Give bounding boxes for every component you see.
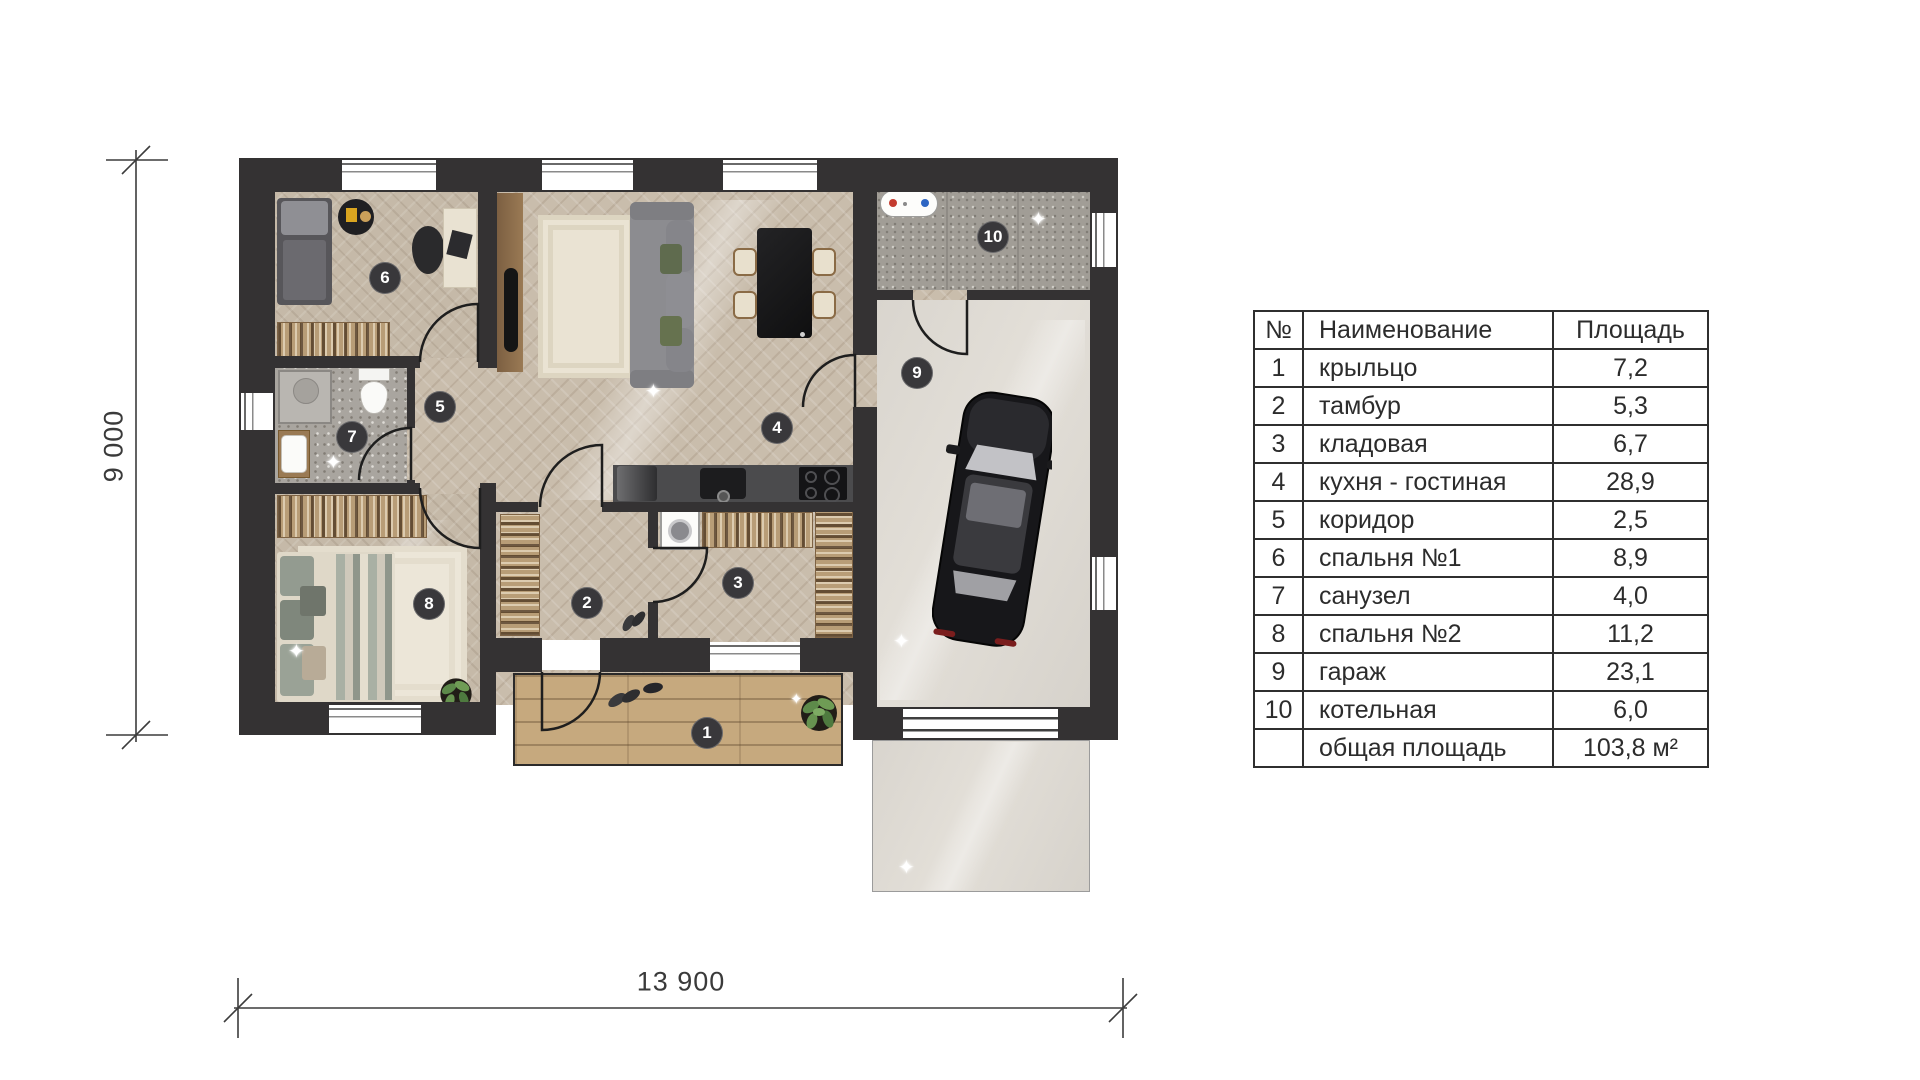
heater-cold-valve — [921, 199, 929, 207]
table-row: 4кухня - гостиная28,9 — [1254, 463, 1708, 501]
room-label-4: 4 — [761, 412, 793, 444]
window — [710, 642, 800, 670]
wall-hall-north — [480, 502, 538, 512]
table-row: 2тамбур5,3 — [1254, 387, 1708, 425]
book — [346, 208, 357, 222]
room-label-7: 7 — [336, 421, 368, 453]
col-header-num: № — [1254, 311, 1303, 349]
dining-chair — [812, 291, 836, 319]
cell-name: гараж — [1303, 653, 1553, 691]
cell-num: 2 — [1254, 387, 1303, 425]
dining-table — [757, 228, 812, 338]
window — [241, 393, 273, 430]
sofa-armrest — [630, 370, 694, 388]
table-row: 10котельная6,0 — [1254, 691, 1708, 729]
heater-dial — [903, 202, 907, 206]
table-row: 8спальня №211,2 — [1254, 615, 1708, 653]
area-table: № Наименование Площадь 1крыльцо7,22тамбу… — [1253, 310, 1709, 768]
cell-area: 11,2 — [1553, 615, 1708, 653]
room-label-2: 2 — [571, 587, 603, 619]
fridge — [617, 466, 657, 501]
dimension-width-label: 13 900 — [637, 967, 726, 998]
wardrobe-bedroom-1 — [277, 322, 390, 358]
window — [342, 160, 436, 190]
cell-name: спальня №2 — [1303, 615, 1553, 653]
window — [1092, 557, 1116, 610]
cell-area: 5,3 — [1553, 387, 1708, 425]
toilet-tank — [358, 368, 390, 381]
shelving-storage — [815, 510, 853, 638]
cell-name: общая площадь — [1303, 729, 1553, 767]
bed-pillow — [300, 586, 326, 616]
sofa-pillow-green — [660, 316, 682, 346]
burner — [824, 469, 840, 485]
table-row: 6спальня №18,9 — [1254, 539, 1708, 577]
cell-name: санузел — [1303, 577, 1553, 615]
cell-num: 6 — [1254, 539, 1303, 577]
cell-num: 10 — [1254, 691, 1303, 729]
sofa-armrest — [630, 202, 694, 220]
cell-name: крыльцо — [1303, 349, 1553, 387]
garage-apron — [872, 740, 1090, 892]
cell-name: котельная — [1303, 691, 1553, 729]
shelving-storage — [702, 512, 813, 548]
wall-bedroom2-north — [275, 483, 420, 494]
table-highlight — [800, 332, 805, 337]
boiler-tile-joint — [1017, 188, 1019, 290]
wall-garage-west — [853, 192, 877, 355]
garage-gate — [903, 709, 1058, 738]
cell-num: 5 — [1254, 501, 1303, 539]
dimension-height-label: 9 000 — [99, 410, 130, 483]
cell-area: 103,8 м² — [1553, 729, 1708, 767]
dining-chair — [733, 291, 757, 319]
cell-num: 8 — [1254, 615, 1303, 653]
wall-hall-storage — [648, 512, 658, 548]
washer-door — [668, 519, 692, 543]
cell-num — [1254, 729, 1303, 767]
cell-name: спальня №1 — [1303, 539, 1553, 577]
wall-south-center — [496, 638, 542, 672]
wall-hall-storage — [648, 602, 658, 638]
floor-plan-page: ✦ ✦ ✦ ✦ ✦ ✦ ✦ 1 2 3 4 5 6 7 8 9 10 9 000… — [0, 0, 1920, 1080]
cell-area: 4,0 — [1553, 577, 1708, 615]
cell-area: 8,9 — [1553, 539, 1708, 577]
table-row: 1крыльцо7,2 — [1254, 349, 1708, 387]
wardrobe-bedroom-2 — [277, 495, 427, 538]
wall-boiler-south — [967, 290, 1090, 300]
room-label-5: 5 — [424, 391, 456, 423]
table-row: 3кладовая6,7 — [1254, 425, 1708, 463]
wall-boiler-south — [877, 290, 913, 300]
col-header-area: Площадь — [1553, 311, 1708, 349]
window — [1092, 213, 1116, 267]
wall-exterior-left — [239, 158, 275, 735]
burner — [805, 471, 817, 483]
cell-area: 28,9 — [1553, 463, 1708, 501]
bed-blanket — [283, 240, 326, 300]
wall-bedroom1-east — [478, 192, 497, 368]
wall-bathroom-east — [407, 368, 415, 428]
burner — [805, 487, 817, 499]
window — [723, 160, 817, 190]
bed-pillow — [302, 646, 326, 680]
boiler-tile-joint — [946, 188, 948, 290]
window — [542, 160, 633, 190]
bed-pillow — [281, 201, 328, 235]
cell-num: 4 — [1254, 463, 1303, 501]
room-label-6: 6 — [369, 262, 401, 294]
cell-name: коридор — [1303, 501, 1553, 539]
cell-name: кладовая — [1303, 425, 1553, 463]
wall-south-center — [600, 638, 710, 672]
cell-area: 6,0 — [1553, 691, 1708, 729]
room-label-3: 3 — [722, 567, 754, 599]
table-header-row: № Наименование Площадь — [1254, 311, 1708, 349]
cell-num: 9 — [1254, 653, 1303, 691]
cell-num: 1 — [1254, 349, 1303, 387]
dining-chair — [812, 248, 836, 276]
table-row: общая площадь103,8 м² — [1254, 729, 1708, 767]
washbasin — [281, 435, 307, 473]
cell-area: 6,7 — [1553, 425, 1708, 463]
cell-num: 7 — [1254, 577, 1303, 615]
col-header-name: Наименование — [1303, 311, 1553, 349]
wall-bedroom1-south — [275, 356, 420, 368]
cell-area: 2,5 — [1553, 501, 1708, 539]
wall-bedroom2-east — [480, 483, 496, 702]
dining-chair — [733, 248, 757, 276]
tv-screen — [504, 268, 518, 352]
burner — [824, 487, 840, 503]
rug-living — [538, 215, 634, 378]
area-table-body: 1крыльцо7,22тамбур5,33кладовая6,74кухня … — [1254, 349, 1708, 767]
porch-deck — [513, 673, 843, 766]
wall-hall-north — [602, 502, 855, 512]
sofa-pillow-green — [660, 244, 682, 274]
room-label-9: 9 — [901, 357, 933, 389]
cell-num: 3 — [1254, 425, 1303, 463]
cup — [360, 211, 371, 222]
cell-area: 7,2 — [1553, 349, 1708, 387]
wall-garage-west — [853, 407, 877, 740]
table-row: 5коридор2,5 — [1254, 501, 1708, 539]
table-row: 7санузел4,0 — [1254, 577, 1708, 615]
entry-door-opening — [542, 640, 600, 670]
heater-hot-valve — [889, 199, 897, 207]
table-row: 9гараж23,1 — [1254, 653, 1708, 691]
room-label-8: 8 — [413, 588, 445, 620]
cell-area: 23,1 — [1553, 653, 1708, 691]
cell-name: кухня - гостиная — [1303, 463, 1553, 501]
window — [329, 705, 421, 733]
room-label-1: 1 — [691, 717, 723, 749]
room-label-10: 10 — [977, 221, 1009, 253]
shower-drain — [293, 378, 319, 404]
bed-blanket-striped — [336, 554, 395, 700]
wardrobe-hall — [500, 514, 540, 636]
cell-name: тамбур — [1303, 387, 1553, 425]
